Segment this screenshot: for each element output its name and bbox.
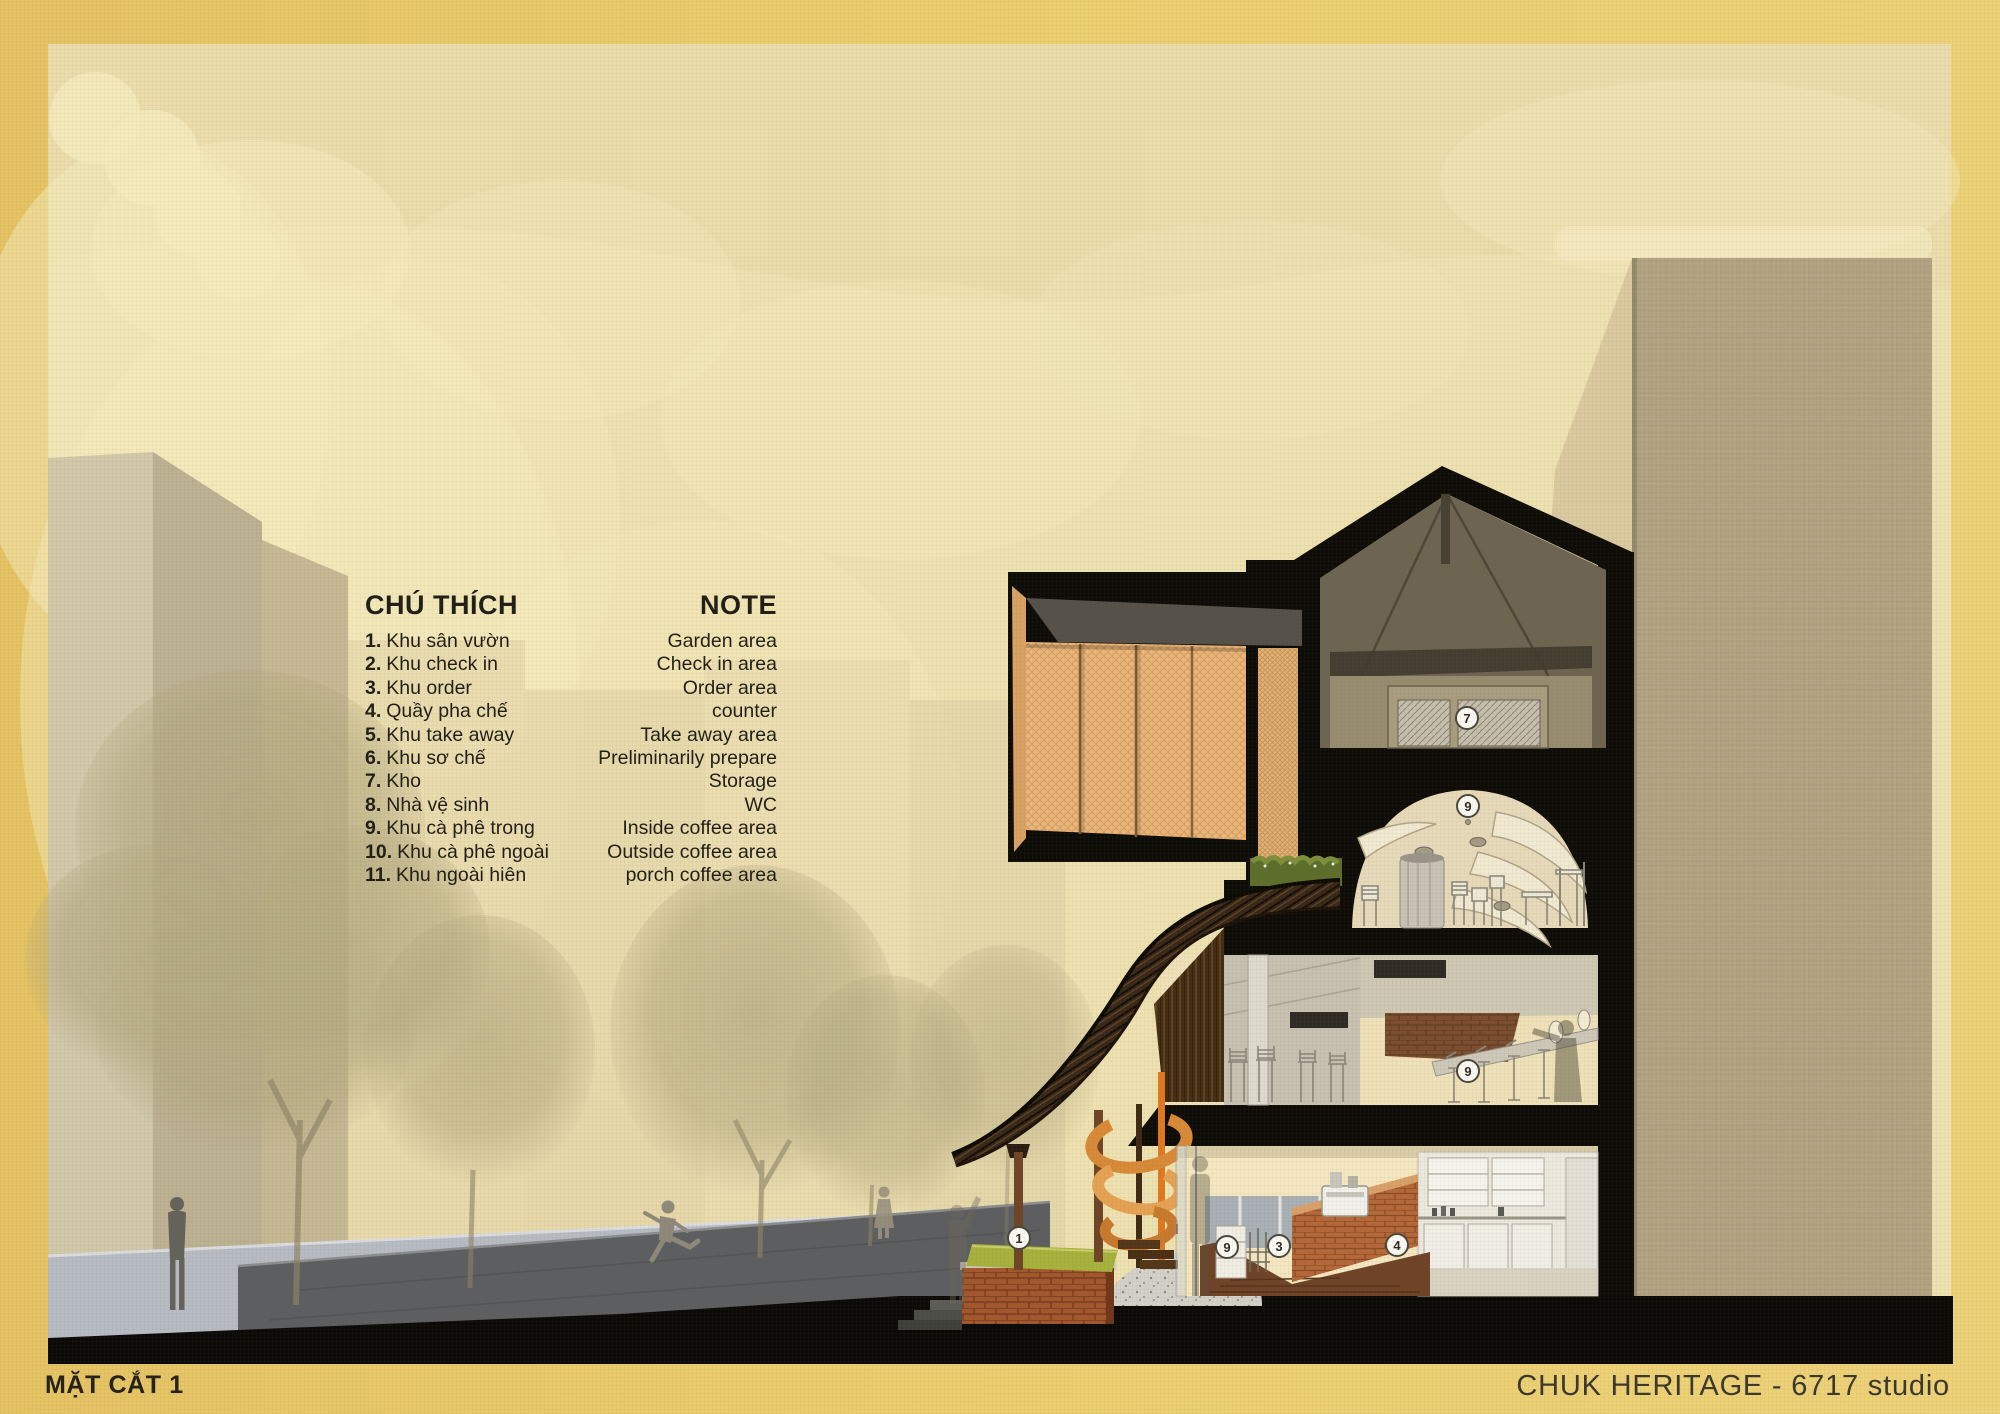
legend-item: 8.Nhà vệ sinhWC bbox=[365, 794, 777, 817]
legend-item: 5.Khu take awayTake away area bbox=[365, 724, 777, 747]
legend-item: 2.Khu check inCheck in area bbox=[365, 653, 777, 676]
marker-garden: 1 bbox=[1007, 1226, 1031, 1250]
legend: CHÚ THÍCH NOTE 1.Khu sân vườnGarden area… bbox=[365, 590, 777, 887]
ac-grille bbox=[1290, 1012, 1348, 1028]
marker-inside-coffee-middle: 9 bbox=[1456, 1059, 1480, 1083]
legend-item: 3.Khu orderOrder area bbox=[365, 677, 777, 700]
ground-floor-interior bbox=[1176, 1146, 1598, 1296]
legend-item: 11.Khu ngoài hiênporch coffee area bbox=[365, 864, 777, 887]
middle-floor-coffee bbox=[1162, 955, 1598, 1105]
section-drawing bbox=[0, 0, 2000, 1414]
marker-inside-coffee-vault: 9 bbox=[1456, 794, 1480, 818]
marker-order: 3 bbox=[1267, 1234, 1291, 1258]
wood-post bbox=[1014, 1152, 1023, 1270]
legend-item: 7.KhoStorage bbox=[365, 770, 777, 793]
marker-inside-coffee-ground: 9 bbox=[1215, 1235, 1239, 1259]
presentation-board: 7 9 9 1 9 3 4 CHÚ THÍCH NOTE 1.Khu sân v… bbox=[0, 0, 2000, 1414]
middle-floor-cut bbox=[1128, 1102, 1634, 1146]
section-title: MẶT CẮT 1 bbox=[45, 1371, 184, 1400]
legend-item: 6.Khu sơ chếPreliminarily prepare bbox=[365, 747, 777, 770]
vault-floor-cut bbox=[1340, 928, 1598, 958]
legend-title-en: NOTE bbox=[700, 590, 777, 621]
marker-counter: 4 bbox=[1385, 1233, 1409, 1257]
ac-grille bbox=[1374, 960, 1446, 978]
studio-credit: CHUK HERITAGE - 6717 studio bbox=[1516, 1370, 1950, 1403]
legend-item: 9.Khu cà phê trongInside coffee area bbox=[365, 817, 777, 840]
stacked-chairs bbox=[1246, 1228, 1270, 1272]
glass-door bbox=[1176, 1146, 1186, 1296]
brick-planter bbox=[962, 1268, 1114, 1324]
legend-item: 1.Khu sân vườnGarden area bbox=[365, 630, 777, 653]
legend-item: 4.Quầy pha chếcounter bbox=[365, 700, 777, 723]
marker-storage: 7 bbox=[1455, 706, 1479, 730]
legend-title-vi: CHÚ THÍCH bbox=[365, 590, 518, 621]
legend-item: 10.Khu cà phê ngoàiOutside coffee area bbox=[365, 841, 777, 864]
roaster-drum bbox=[1400, 858, 1444, 928]
